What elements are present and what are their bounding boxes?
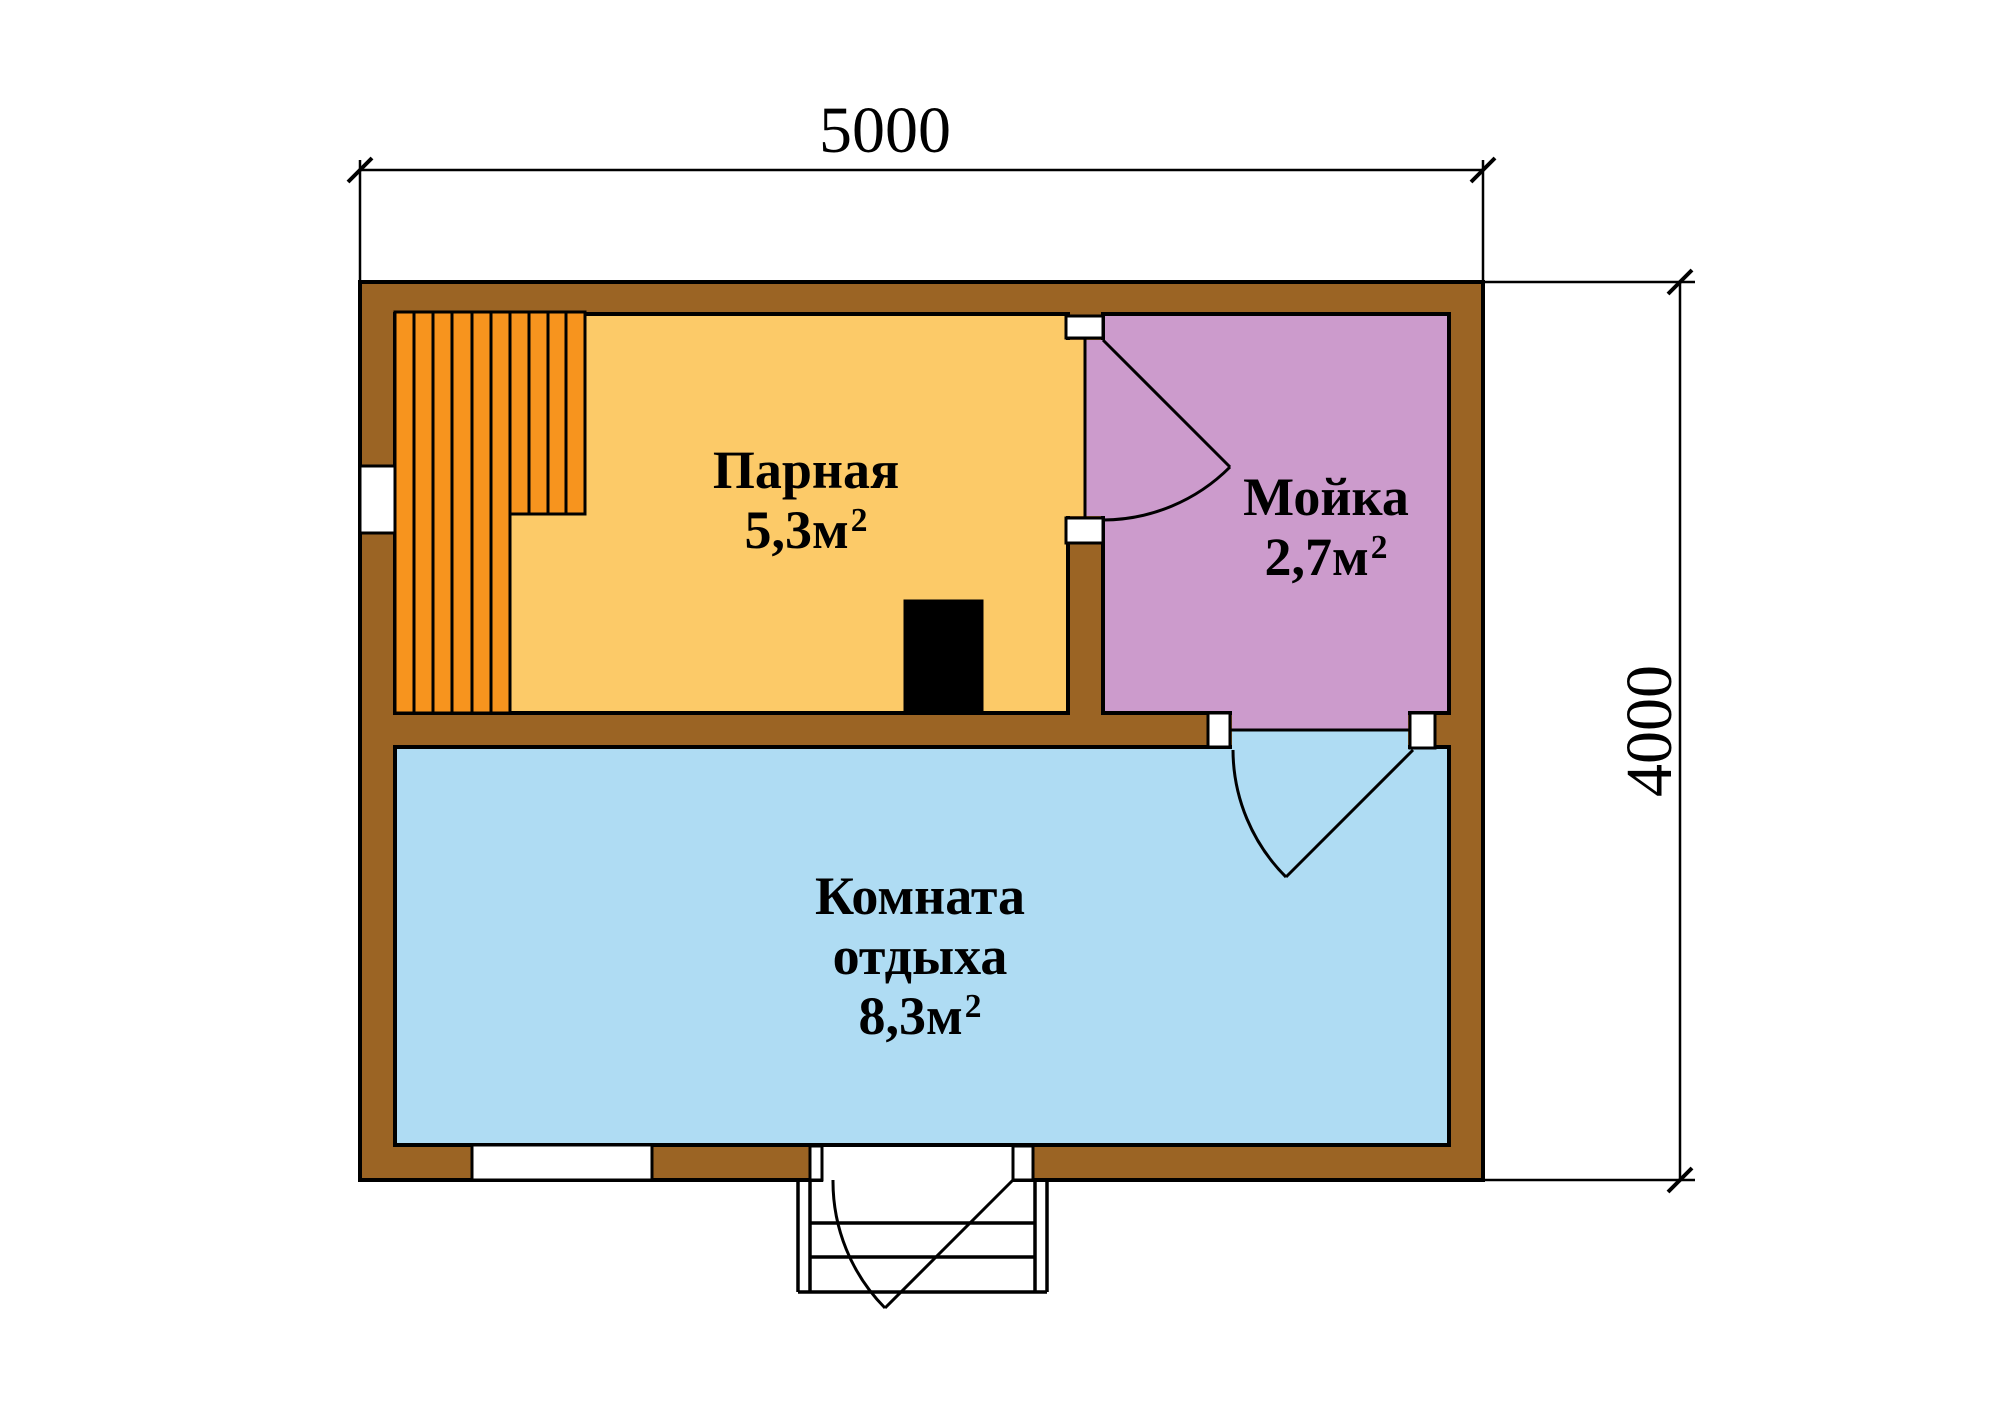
window-bottom-wall — [472, 1145, 652, 1180]
room-steam-area-value: 5,3м — [744, 500, 848, 560]
doorway-wash-floor-patch2 — [1232, 711, 1408, 730]
dimension-height-label: 4000 — [1616, 581, 1684, 881]
floor-plan-drawing — [0, 0, 2000, 1413]
room-steam-name: Парная — [656, 440, 956, 500]
jamb-wash-rest-right — [1410, 713, 1435, 748]
room-steam-area-sup: 2 — [851, 502, 868, 539]
jamb-entrance-right — [1013, 1146, 1033, 1180]
room-wash-name: Мойка — [1176, 467, 1476, 527]
doorway-steam-floor-patch — [1063, 340, 1085, 516]
porch-steps — [798, 1180, 1047, 1292]
room-label-rest: Комната отдыха 8,3м2 — [785, 866, 1055, 1054]
stove — [905, 601, 982, 713]
room-wash-area-value: 2,7м — [1264, 527, 1368, 587]
room-rest-name: Комната отдыха — [785, 866, 1055, 986]
room-wash-area: 2,7м2 — [1176, 527, 1476, 595]
dimension-width — [348, 158, 1495, 282]
jamb-entrance-left — [810, 1146, 822, 1180]
doorway-wash-floor-patch — [1085, 340, 1107, 516]
window-left-wall — [360, 466, 395, 533]
floor-plan-canvas: 5000 4000 Парная 5,3м2 Мойка 2,7м2 Комна… — [0, 0, 2000, 1413]
room-rest-area-sup: 2 — [965, 988, 982, 1025]
door-entrance — [833, 1180, 1013, 1308]
room-steam-area: 5,3м2 — [656, 500, 956, 568]
dimension-width-label: 5000 — [735, 97, 1035, 165]
room-wash-area-sup: 2 — [1371, 529, 1388, 566]
doorway-rest-floor-patch — [1232, 730, 1408, 749]
door-leaf-entrance — [885, 1180, 1013, 1308]
jamb-steam-wash-bottom — [1066, 518, 1103, 543]
room-rest-area: 8,3м2 — [785, 986, 1055, 1054]
room-label-steam: Парная 5,3м2 — [656, 440, 956, 568]
room-label-wash: Мойка 2,7м2 — [1176, 467, 1476, 595]
jamb-wash-rest-left — [1208, 713, 1230, 747]
entrance-opening-patch — [823, 1147, 1012, 1183]
room-rest-area-value: 8,3м — [858, 986, 962, 1046]
jamb-steam-wash-top — [1066, 316, 1103, 338]
door-arc-entrance — [833, 1180, 885, 1308]
